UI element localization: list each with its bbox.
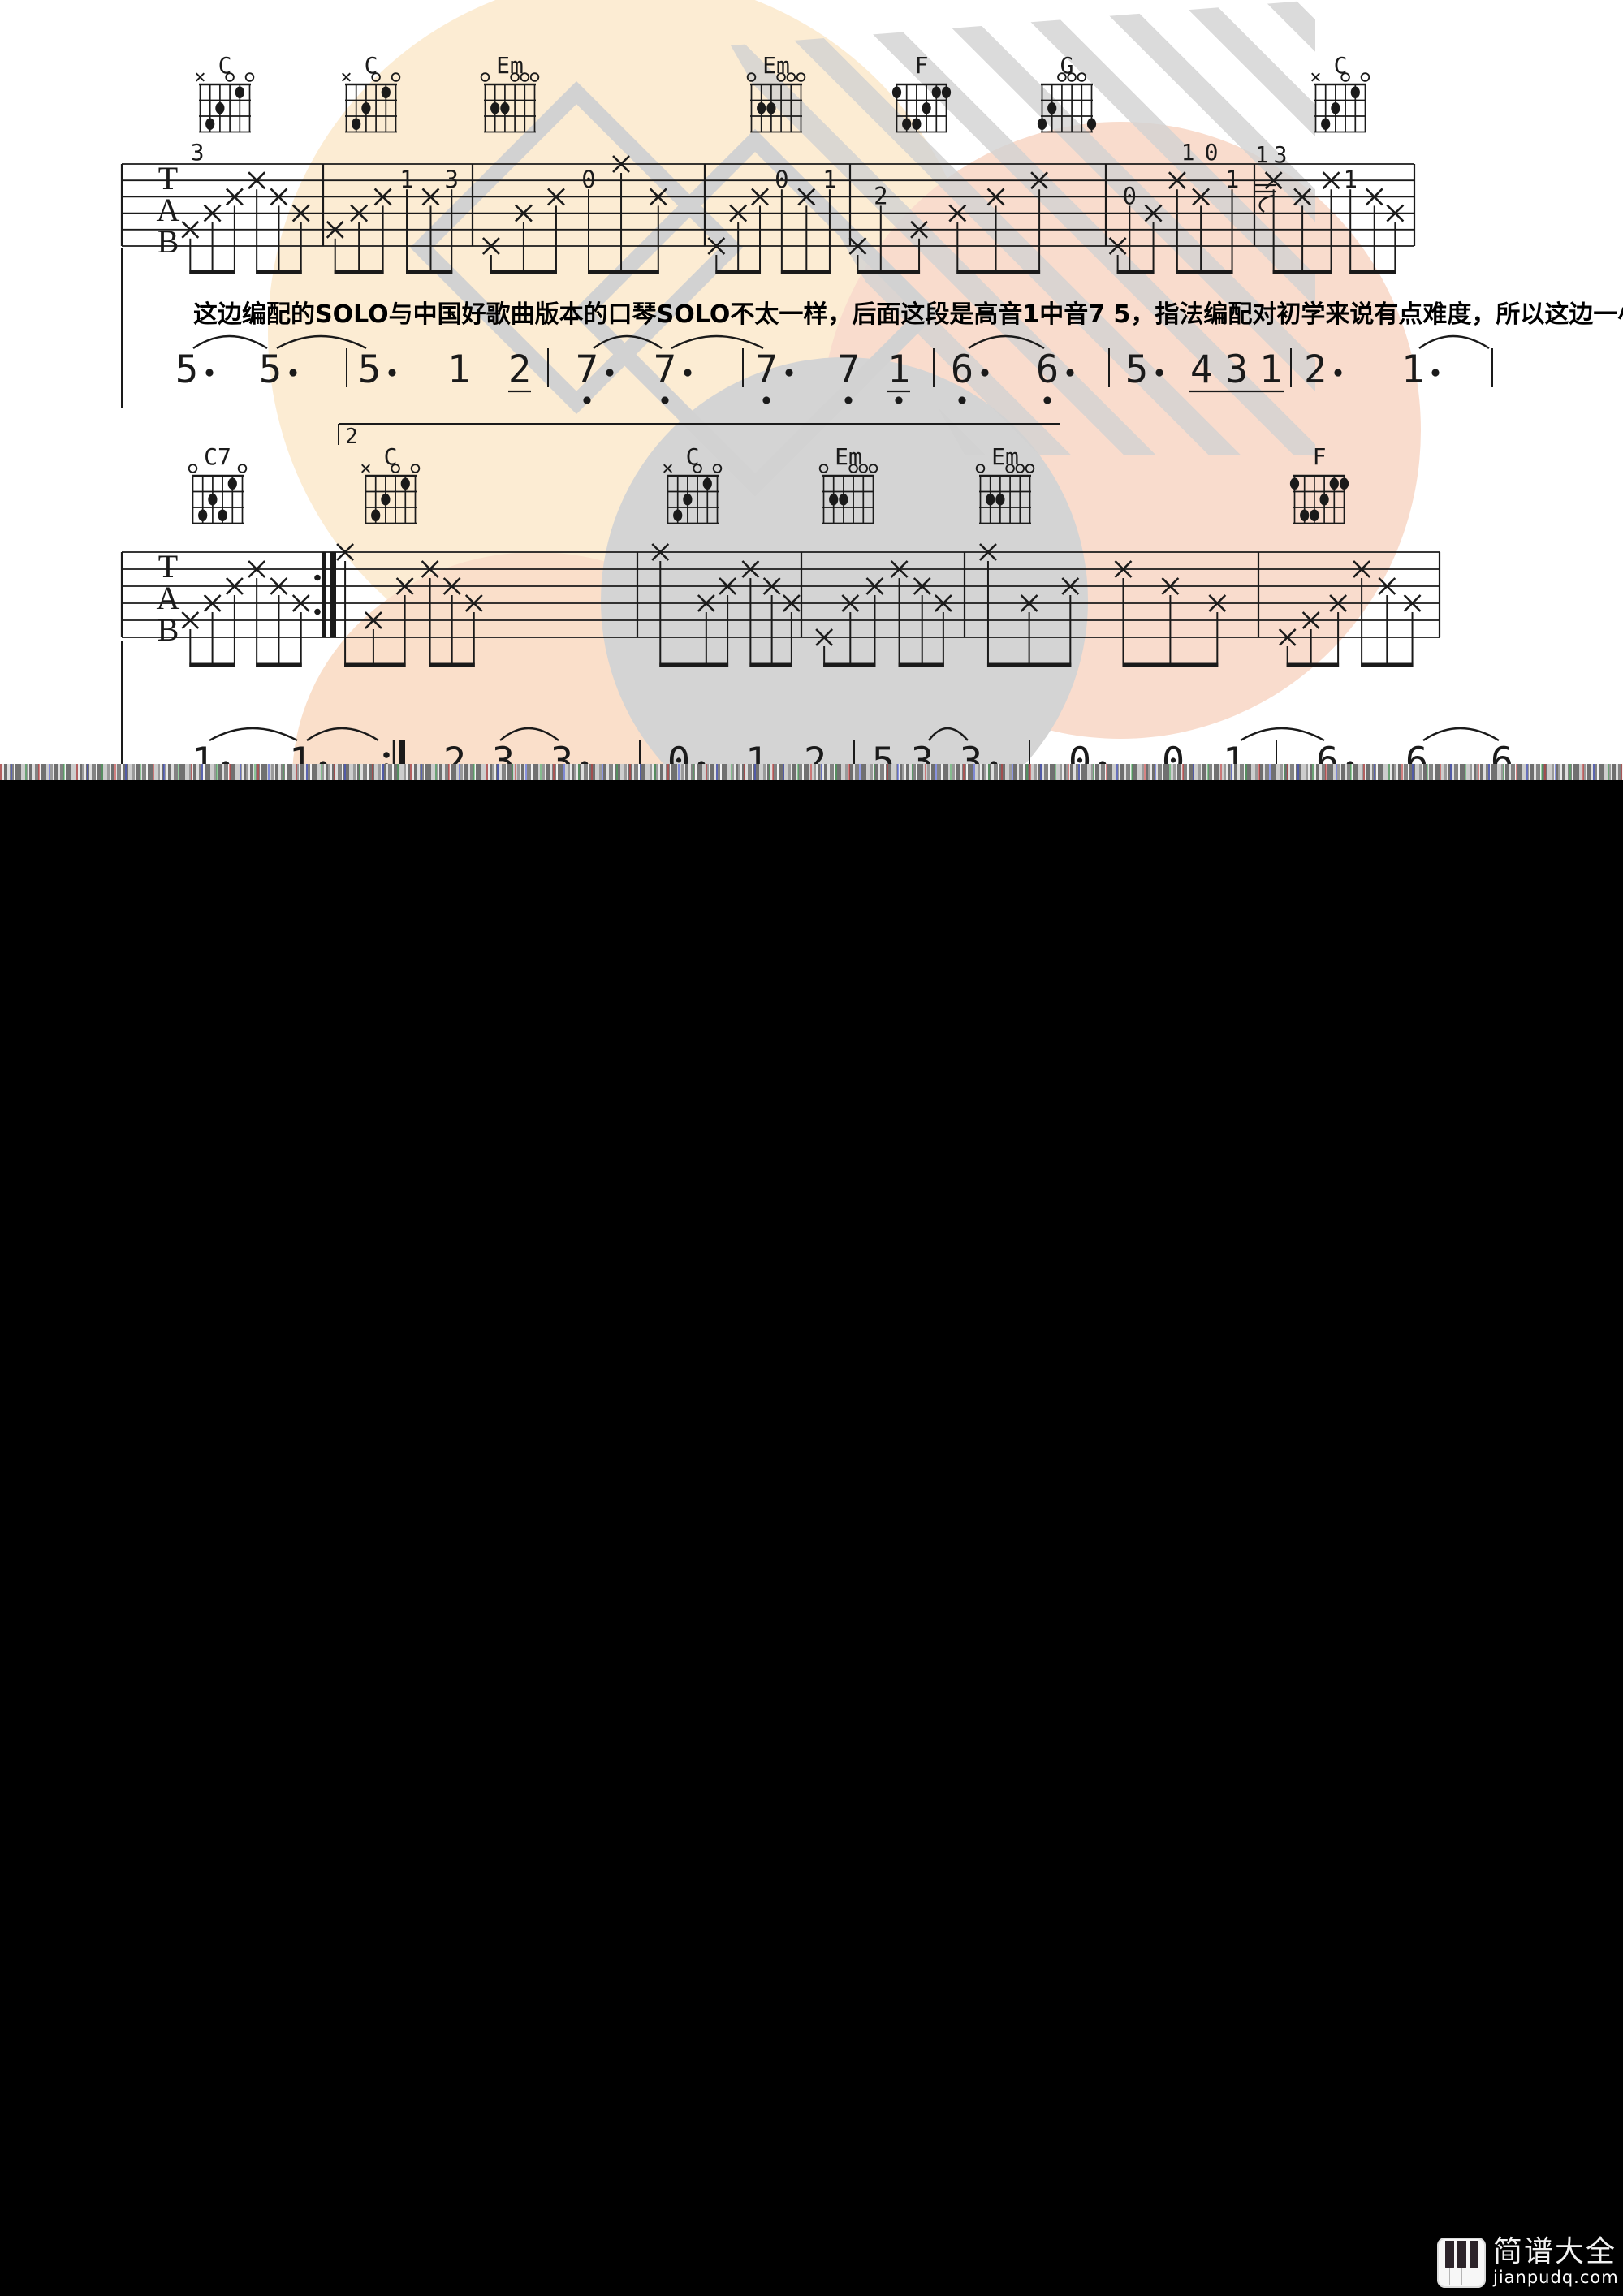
tie-slur [1419,336,1489,348]
beam [1287,663,1339,668]
annotation-text: 这边编配的SOLO与中国好歌曲版本的口琴SOLO不太一样，后面这段是高音1中音7… [193,294,1590,330]
beam [429,663,475,668]
tab-measure: 1 [1266,166,1404,274]
beam [781,270,831,275]
svg-text:3: 3 [191,139,205,166]
svg-text:Em: Em [991,443,1019,470]
svg-text:C: C [384,443,398,470]
jianpu-token: 1 [887,347,910,404]
tab-measure [652,544,800,667]
svg-text:1: 1 [1181,139,1195,166]
jianpu-token: 3 [1225,347,1248,392]
noise-band [0,764,1623,780]
tab-system-2: TAB [122,544,1440,667]
tab-measure [337,544,482,667]
jianpu-token: 2 [1304,347,1342,392]
svg-text:5: 5 [358,347,381,392]
tab-measure [182,561,309,667]
tab-measure [1280,561,1421,667]
beam [588,270,659,275]
svg-text:1: 1 [1343,166,1357,193]
site-logo[interactable]: 简谱大全 jianpudq.com [1437,2238,1619,2288]
beam [899,663,944,668]
beam [1273,270,1332,275]
sheet-page: TAB13001201131013CCEmEmFGCTABC7CCEmEmF25… [0,0,1623,2296]
logo-brand: 简谱大全 [1493,2238,1619,2267]
tie-slur [1423,728,1499,740]
beam [987,663,1071,668]
svg-text:0: 0 [775,166,788,193]
chord-diagram-Em: Em [481,52,539,132]
beam [857,270,920,275]
jianpu-token: 7 [654,347,692,404]
svg-text:2: 2 [345,425,358,449]
svg-text:5: 5 [1125,347,1148,392]
chord-diagram-C: C [196,52,254,132]
svg-text:G: G [1060,52,1074,79]
svg-text:F: F [915,52,929,79]
jianpu-token: 5 [1125,347,1163,392]
tab-system-1: TAB13001201131013 [122,139,1414,274]
number-notation-line-1: 555127777166543121 [175,336,1492,404]
svg-text:Em: Em [762,52,790,79]
tie-slur [500,728,559,740]
svg-text:1: 1 [1401,347,1424,392]
tie-slur [193,336,267,348]
tab-measure: 0 [483,156,667,274]
svg-text:F: F [1313,443,1327,470]
jianpu-token: 6 [951,347,989,404]
chord-diagram-C: C [362,443,420,524]
tab-letter: B [158,223,179,260]
tie-slur [969,336,1044,348]
logo-domain: jianpudq.com [1493,2269,1619,2286]
chord-diagram-Em: Em [748,52,805,132]
beam [659,663,728,668]
svg-text:6: 6 [951,347,973,392]
svg-text:2: 2 [874,182,887,209]
jianpu-token: 7 [837,347,860,404]
jianpu-token: 2 [508,347,531,392]
tie-slur [929,728,968,740]
chord-diagram-G: G [1038,52,1096,132]
svg-text:0: 0 [1123,182,1137,209]
jianpu-token: 1 [447,347,470,392]
tie-slur [1241,728,1324,740]
svg-text:7: 7 [576,347,598,392]
end-repeat-sign [314,552,336,637]
svg-text:1: 1 [887,347,910,392]
jianpu-token: 1 [1259,347,1282,392]
chord-diagram-C: C [1312,52,1370,132]
tab-measure: 2 [849,172,1047,274]
beam [1176,270,1233,275]
tab-measure: 01 [708,166,836,274]
svg-text:2: 2 [1304,347,1327,392]
chord-diagram-C7: C7 [189,443,247,524]
chord-diagram-C: C [343,52,400,132]
svg-text:5: 5 [175,347,198,392]
tie-slur [277,336,366,348]
tie-slur [209,728,297,740]
tab-measure: 13 [327,166,459,274]
jianpu-token: 5 [175,347,214,392]
jianpu-token: 4 [1190,347,1213,392]
beam [823,663,875,668]
svg-text:5: 5 [259,347,282,392]
beam [406,270,452,275]
svg-text:0: 0 [1205,139,1219,166]
tab-measure: 01 [1110,166,1240,274]
beam [335,270,384,275]
beam [256,270,302,275]
beam [1122,663,1218,668]
svg-text:6: 6 [1036,347,1059,392]
tie-slur [594,336,662,348]
svg-text:C7: C7 [204,443,231,470]
beam [1117,270,1155,275]
svg-text:C: C [1334,52,1348,79]
svg-text:7: 7 [837,347,860,392]
tie-slur [671,336,763,348]
jianpu-token: 6 [1036,347,1074,404]
beam [256,663,302,668]
chord-diagram-Em: Em [820,443,878,524]
chord-diagram-C: C [664,443,722,524]
piano-keys-icon [1437,2238,1486,2288]
chord-diagram-Em: Em [977,443,1034,524]
tie-slur [307,728,378,740]
black-region [0,780,1623,2296]
svg-text:3: 3 [445,166,459,193]
svg-text:C: C [686,443,700,470]
svg-text:1: 1 [1259,347,1282,392]
svg-text:7: 7 [755,347,778,392]
beam [344,663,406,668]
svg-text:3: 3 [1225,347,1248,392]
tab-measure [816,561,952,667]
svg-text:C: C [218,52,232,79]
tab-measure [182,172,309,274]
svg-text:3: 3 [1274,141,1288,168]
svg-text:C: C [365,52,378,79]
svg-text:0: 0 [581,166,595,193]
chord-diagram-F: F [892,52,951,132]
chord-diagram-F: F [1290,443,1349,524]
svg-text:1: 1 [1255,141,1269,168]
jianpu-token: 7 [576,347,614,404]
beam [956,270,1040,275]
svg-text:Em: Em [496,52,524,79]
svg-text:Em: Em [835,443,862,470]
jianpu-token: 7 [755,347,793,404]
svg-text:2: 2 [508,347,531,392]
beam [1361,663,1413,668]
tab-measure [980,544,1225,667]
jianpu-token: 1 [1401,347,1440,392]
jianpu-token: 5 [259,347,297,392]
svg-text:4: 4 [1190,347,1213,392]
beam [189,270,235,275]
svg-text:1: 1 [447,347,470,392]
svg-text:1: 1 [1225,166,1239,193]
beam [189,663,235,668]
tab-letter: B [158,611,179,648]
beam [1349,270,1396,275]
beam [490,270,557,275]
svg-text:7: 7 [654,347,676,392]
beam [715,270,761,275]
beam [749,663,792,668]
svg-text:1: 1 [399,166,413,193]
jianpu-token: 5 [358,347,396,392]
svg-text:1: 1 [822,166,836,193]
